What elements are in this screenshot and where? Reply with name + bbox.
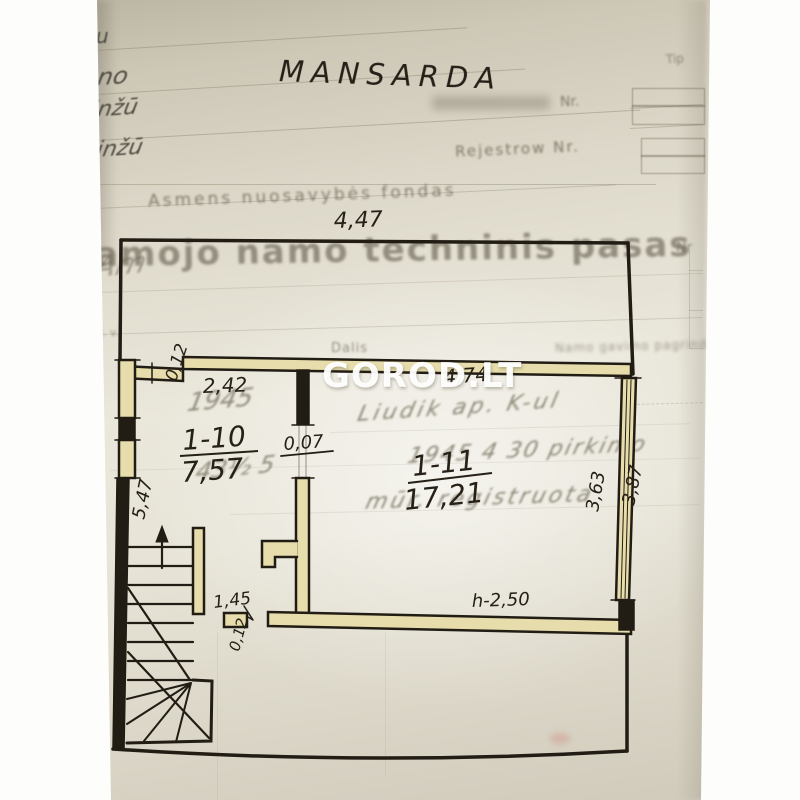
winder-outline [127, 680, 212, 743]
dim-door-gap: 0,07 [283, 431, 325, 455]
stair-treads [128, 547, 193, 680]
photo-of-floor-plan-document: Tip Nr. Rejestrow Nr. Asmens nuosavybės … [0, 0, 800, 800]
watermark: GOROD.LT [322, 356, 522, 396]
winder-treads [127, 683, 191, 742]
room-110-area: 7,57 [180, 452, 245, 489]
left-wall-windows [113, 360, 140, 750]
stair-wall [193, 528, 204, 614]
dim-ceiling-height: h-2,50 [471, 589, 530, 612]
plan-labels: 4,47 0,12 2,42 4,74 0,07 5,47 1-10 7,57 … [128, 207, 647, 653]
room-bottom-wall [224, 600, 634, 634]
document-page: Tip Nr. Rejestrow Nr. Asmens nuosavybės … [0, 0, 800, 800]
dim-right-height-inner: 3,63 [582, 470, 610, 513]
interior-wall [262, 370, 314, 620]
dim-left-height: 5,47 [128, 477, 157, 521]
chimney-stub [262, 541, 297, 567]
floor-plan-drawing: 4,47 0,12 2,42 4,74 0,07 5,47 1-10 7,57 … [0, 0, 800, 800]
room-111-area: 17,21 [402, 476, 485, 517]
dim-room110-width: 2,42 [202, 372, 247, 398]
staircase [127, 526, 212, 743]
up-arrow-head [156, 526, 168, 542]
dim-top-width: 4,47 [333, 207, 383, 234]
